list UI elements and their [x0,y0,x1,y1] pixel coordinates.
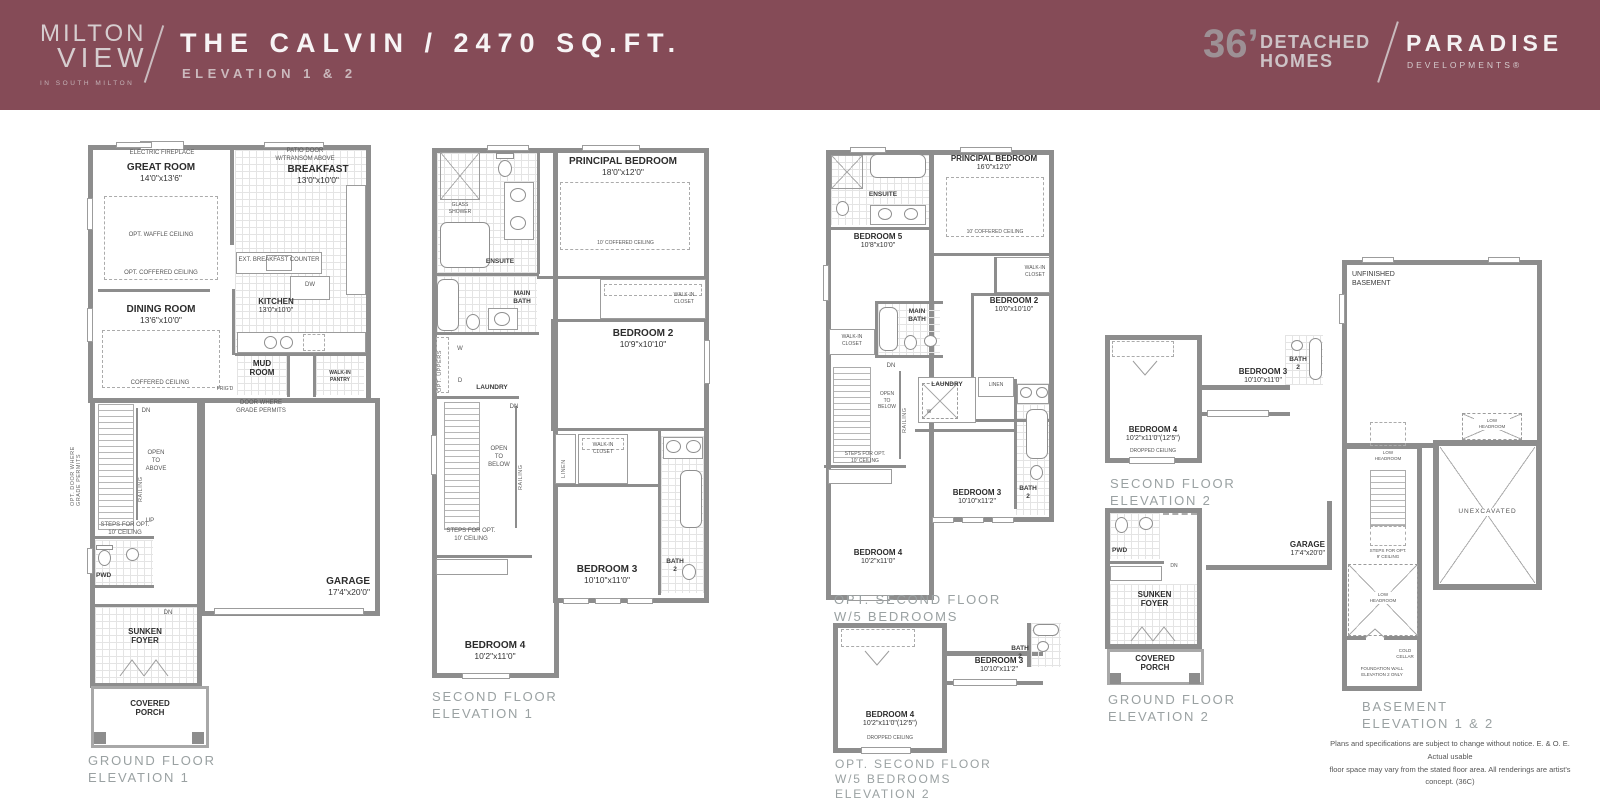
sink-icon [126,548,139,561]
unfinished-basement-label: UNFINISHED BASEMENT [1352,270,1416,288]
window [1488,257,1520,263]
ensuite-label: ENSUITE [472,258,528,266]
toilet-icon [1030,465,1043,480]
wall [1200,385,1290,390]
glass-shower-icon [440,152,480,200]
covered-porch-label: COVERED PORCH [110,700,190,718]
garage-label: GARAGE 17'4"x20'0" [1255,541,1325,559]
stairs [833,367,871,463]
bedroom-2-label: BEDROOM 2 10'0"x10'10" [976,297,1052,315]
note-dn: DN [138,408,154,416]
walk-in-closet-label: WALK-IN CLOSET [1020,265,1050,278]
window [992,517,1014,523]
wall [432,555,532,558]
garage-label: GARAGE 17'4"x20'0" [278,576,370,598]
bedroom-3-label: BEDROOM 3 10'10"x11'2" [957,657,1041,675]
wall [551,319,709,322]
porch-pillar [1189,673,1200,684]
sink-icon [904,208,918,220]
bathtub-icon [437,279,459,331]
toilet-icon [498,160,512,177]
wall [98,289,210,292]
bedroom-3-label: BEDROOM 3 10'10"x11'0" [557,564,657,586]
plan-basement: UNEXCAVATED LOW HEADROOM UNFINISHED BASE… [1340,258,1548,736]
closet-outline [828,469,892,484]
wall [435,396,519,399]
note-coffered-10: 10' COFFERED CEILING [578,240,673,247]
caption-opt-second-floor-elevation-2: OPT. SECOND FLOOR W/5 BEDROOMS ELEVATION… [835,757,992,802]
note-door-where-grade-permits: DOOR WHERE GRADE PERMITS [228,400,294,416]
bedroom-3-label: BEDROOM 3 10'10"x11'0" [1221,368,1305,386]
wall [553,484,661,487]
note-patio-door: PATIO DOOR W/TRANSOM ABOVE [270,148,340,164]
sink-icon [1291,340,1303,351]
wall [1108,561,1164,564]
glass-shower-label: GLASS SHOWER [440,202,480,215]
note-dn: DN [1167,563,1181,570]
note-railing: RAILING [518,450,524,490]
wall [994,257,997,293]
sink-icon [280,336,293,349]
bedroom-3-label: BEDROOM 3 10'10"x11'2" [932,489,1022,507]
sink-icon [264,336,277,349]
mud-room-label: MUD ROOM [238,360,286,378]
page-title: THE CALVIN / 2470 SQ.FT. [180,28,682,59]
garage-wall [1327,501,1332,570]
toilet-icon [98,550,111,566]
door-swing-icon [1131,359,1159,377]
sink-icon [494,312,510,326]
bathtub-icon [1026,409,1048,459]
garage-door [214,608,364,615]
coffered-ceiling-outline [946,177,1044,237]
bathtub-icon [1033,624,1059,636]
window [462,673,510,679]
note-coffered-ceiling: COFFERED CEILING [116,380,204,388]
walk-in-closet-label: WALK-IN CLOSET [664,292,704,305]
kitchen-label: KITCHEN 13'0"x10'0" [238,298,314,316]
plan-opt-second-floor-elevation-1: ENSUITE MAIN BATH PRINCIPAL BEDROOM 16'0… [820,145,1058,650]
sink-icon [1037,641,1049,652]
window [953,679,1017,686]
porch-pillar [94,732,106,744]
door-swing-icon [1364,628,1386,640]
window [962,517,984,523]
page-subtitle: ELEVATION 1 & 2 [182,66,357,81]
note-ext-breakfast-counter: EXT. BREAKFAST COUNTER [238,257,320,265]
pwd-label: PWD [1112,547,1138,555]
glass-shower-icon [831,155,863,189]
closet-outline [1112,341,1174,357]
sink-icon [510,216,526,230]
low-headroom-label: LOW HEADROOM [1474,418,1510,430]
note-washer: W [924,409,934,416]
kitchen-cabinets [346,185,366,295]
toilet-icon [836,201,849,216]
window [87,198,93,230]
note-open-to-below: OPEN TO BELOW [874,391,900,411]
window [87,548,93,574]
linen-label: LINEN [561,442,567,478]
principal-bedroom-label: PRINCIPAL BEDROOM 16'0"x12'0" [938,155,1050,173]
note-opt-coffered-ceiling: OPT. COFFERED CEILING [110,270,212,278]
note-railing: RAILING [138,462,144,502]
window [1207,410,1269,417]
laundry-label: LAUNDRY [468,384,516,392]
door-swing-icon [118,658,170,678]
window [1129,457,1175,464]
note-open-to-below: OPEN TO BELOW [482,446,516,469]
toilet-icon [1115,517,1128,533]
wall [235,353,371,356]
caption-basement: BASEMENT ELEVATION 1 & 2 [1362,698,1494,732]
note-dryer: D [454,378,466,386]
great-room-label: GREAT ROOM 14'0"x13'6" [96,162,226,184]
wall [435,332,539,335]
bathtub-icon [680,470,702,528]
low-headroom-label: LOW HEADROOM [1370,450,1406,462]
wall [658,431,661,595]
window [595,598,621,604]
window [431,435,437,475]
porch-pillar [192,732,204,744]
note-washer: W [454,346,466,354]
porch-pillar [1110,673,1121,684]
bedroom-2-label: BEDROOM 2 10'9"x10'10" [582,328,704,350]
breakfast-label: BREAKFAST 13'0"x10'0" [270,164,366,186]
pwd-label: PWD [96,572,126,580]
sink-icon [510,188,526,202]
principal-bedroom-label: PRINCIPAL BEDROOM 18'0"x12'0" [542,156,704,178]
kitchen-base-counter [237,332,366,353]
toilet-icon [466,314,480,330]
note-dn: DN [884,363,898,371]
stairs [444,402,480,530]
window [1362,257,1394,263]
main-bath-label: MAIN BATH [504,290,540,307]
caption-second-floor-elevation-1: SECOND FLOOR ELEVATION 1 [432,688,558,722]
toilet-icon [682,564,696,580]
stove-outline [303,334,325,351]
wall [824,465,906,468]
note-opt-door-where-grade-permits: OPT. DOOR WHERE GRADE PERMITS [70,406,82,506]
bedroom-5-label: BEDROOM 5 10'8"x10'0" [832,233,924,251]
wall [1384,636,1420,640]
wall [929,253,1054,256]
toilet-icon [904,335,917,350]
main-bath-label: MAIN BATH [900,308,934,325]
bathtub-icon [879,307,898,351]
note-dn: DN [506,404,522,412]
plan-ground-floor-elevation-2: PWD DN SUNKEN FOYER COVERED PORCH GARAGE… [1105,505,1340,715]
covered-porch-label: COVERED PORCH [1125,655,1185,673]
sink-icon [878,208,892,220]
header-banner: MILTON VIEW IN SOUTH MILTON THE CALVIN /… [0,0,1600,110]
closet-outline [1110,566,1162,581]
wall [915,429,1015,432]
note-dw: DW [298,282,322,290]
note-steps-opt-ceiling: STEPS FOR OPT. 10' CEILING [440,528,502,544]
laundry-label: LAUNDRY [922,381,972,389]
door-swing-icon [863,649,891,667]
brand-homes: HOMES [1260,51,1334,72]
note-steps-opt-ceiling: STEPS FOR OPT. 10' CEILING [836,451,894,464]
window [116,142,152,148]
bedroom-4-label: BEDROOM 4 10'2"x11'0" [440,640,550,662]
divider-slash-icon [1377,21,1399,82]
unexcavated-label: UNEXCAVATED [1457,508,1518,516]
sink-icon [1020,387,1032,398]
wall [90,604,200,607]
window [627,598,653,604]
plan-ground-floor-elevation-1: ELECTRIC FIREPLACE GREAT ROOM 14'0"x13'6… [88,140,388,790]
wall [435,273,539,276]
future-wall-dashed [1163,513,1197,515]
window [582,145,640,151]
wall [232,289,235,355]
sink-icon [686,440,701,453]
note-opt-waffle-ceiling: OPT. WAFFLE CEILING [110,232,212,240]
wall [875,355,943,358]
brand-developments: DEVELOPMENTS® [1407,60,1522,70]
note-opt-uppers: OPT. UPPERS [437,342,443,392]
sink-icon [1036,387,1048,398]
wall [551,428,709,431]
wall [287,355,290,397]
foundation-wall-note: FOUNDATION WALL ELEVATION 2 ONLY [1350,666,1414,678]
sunken-foyer-label: SUNKEN FOYER [1127,591,1182,609]
sink-icon [1139,517,1153,530]
window [563,598,589,604]
bedroom-4-label: BEDROOM 4 10'2"x11'0"(12'5") [1113,426,1193,444]
note-fridge: FRIG'D [212,386,238,393]
disclaimer-text: Plans and specifications are subject to … [1322,738,1578,789]
wall [875,301,878,358]
bedroom-4-label: BEDROOM 4 10'2"x11'0" [832,549,924,567]
bedroom-4-label: BEDROOM 4 10'2"x11'0"(12'5") [847,711,933,729]
note-dropped-ceiling: DROPPED CEILING [1125,448,1181,455]
linen-label: LINEN [982,382,1010,389]
bath-2-label: BATH 2 [1016,485,1040,502]
caption-ground-floor-elevation-1: GROUND FLOOR ELEVATION 1 [88,752,216,786]
bathtub-icon [1309,338,1322,380]
sunken-foyer-label: SUNKEN FOYER [116,628,174,646]
closet-outline [436,559,508,575]
plan-opt-second-floor-elevation-2: BATH 2 BEDROOM 3 10'10"x11'2" BEDROOM 4 … [833,615,1061,800]
sink-icon [666,440,681,453]
toilet-icon [496,153,514,159]
cold-cellar-label: COLD CELLAR [1392,648,1418,660]
bathtub-icon [870,154,926,178]
note-open-to-above: OPEN TO ABOVE [140,450,172,473]
walk-in-pantry-label: WALK-IN PANTRY [316,370,364,383]
dining-room-label: DINING ROOM 13'6"x10'0" [102,304,220,326]
plan-second-floor-elevation-1: GLASS SHOWER ENSUITE MAIN BATH PRINCIPAL… [432,140,717,720]
window [960,147,1012,153]
note-railing: RAILING [902,397,908,433]
window [850,147,886,153]
low-headroom-label: LOW HEADROOM [1364,592,1402,604]
window [932,517,954,523]
wall [230,145,234,245]
window [704,340,710,384]
note-electric-fireplace: ELECTRIC FIREPLACE [114,150,210,158]
garage-wall [1206,565,1332,570]
stairs [1370,470,1406,526]
ensuite-label: ENSUITE [858,191,908,199]
wall [537,148,540,274]
window [87,308,93,342]
caption-ground-floor-elevation-2: GROUND FLOOR ELEVATION 2 [1108,691,1236,725]
lot-size-badge: 36’ [1203,22,1259,67]
wall [829,227,931,230]
note-dn: DN [160,610,176,618]
window [1339,294,1345,324]
stairs-dashed [1370,526,1406,546]
walk-in-closet-label: WALK-IN CLOSET [580,442,626,455]
brand-paradise: PARADISE [1406,30,1563,57]
sink-icon [924,335,937,347]
door-swing-icon [1129,625,1177,643]
stairs-dashed [1370,422,1406,446]
wall [551,319,554,431]
window [823,265,829,301]
note-dropped-ceiling: DROPPED CEILING [859,735,921,742]
window [861,747,911,754]
note-coffered-10: 10' COFFERED CEILING [956,229,1034,236]
railing-wall [899,371,901,459]
walk-in-closet-label: WALK-IN CLOSET [831,334,873,347]
stairs [98,404,134,530]
wall [875,301,943,304]
wall [1344,636,1366,640]
brand-detached: DETACHED [1260,32,1371,53]
plan-second-floor-elevation-2: BATH 2 BEDROOM 3 10'10"x11'0" BEDROOM 4 … [1105,330,1325,502]
wall [90,585,154,588]
window [487,145,529,151]
note-steps-opt-9: STEPS FOR OPT. 9' CEILING [1364,548,1412,560]
logo-view: VIEW [57,42,149,74]
note-steps-opt-ceiling: STEPS FOR OPT. 10' CEILING [94,522,156,538]
logo-subtitle: IN SOUTH MILTON [40,80,134,87]
closet-outline [841,629,915,647]
